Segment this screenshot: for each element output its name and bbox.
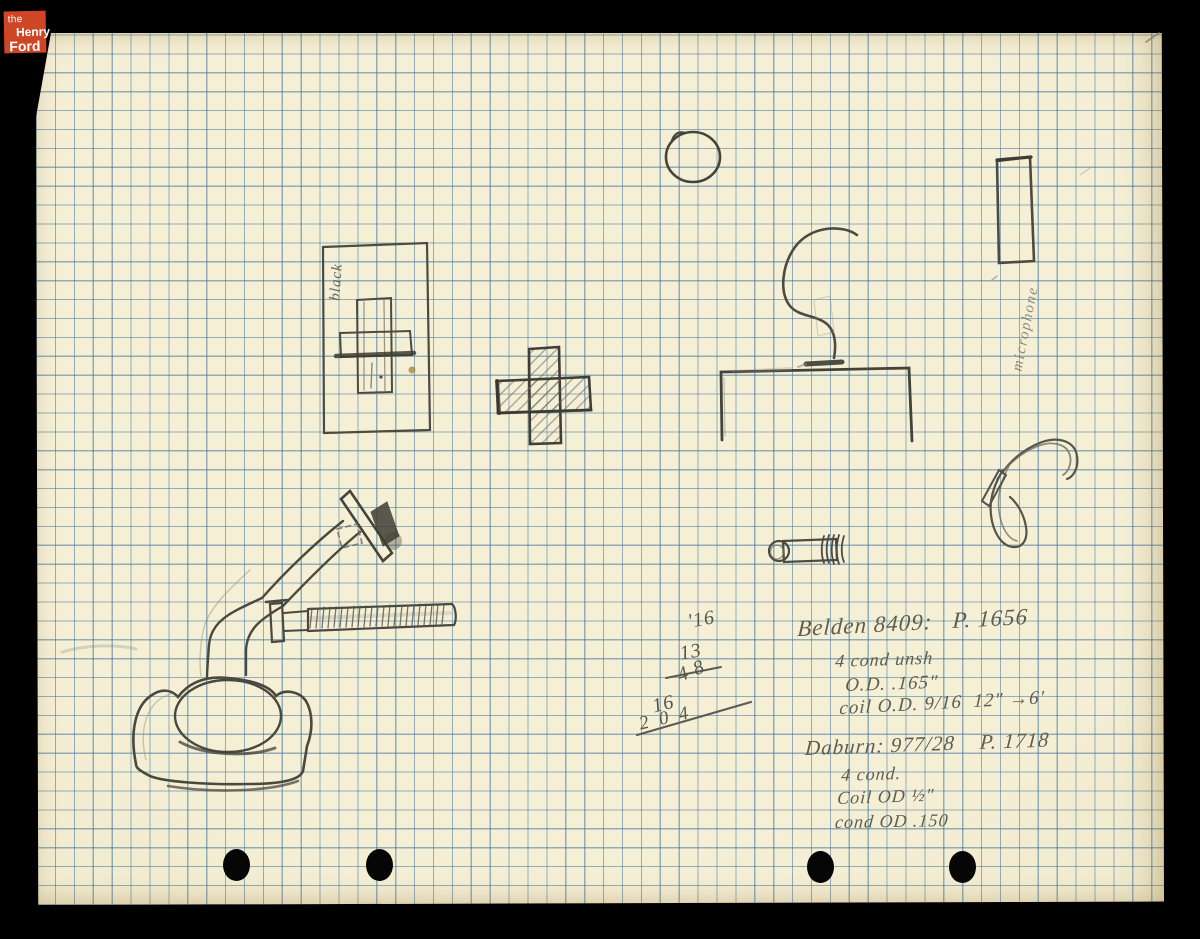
note-cond: 4 cond. [841, 763, 902, 786]
henry-ford-logo: the Henry Ford [4, 11, 47, 54]
note-cond-od: cond OD .150 [834, 810, 949, 833]
punch-hole [949, 851, 976, 883]
punch-hole [807, 851, 834, 883]
label-black: black [337, 281, 374, 299]
logo-henry: Henry [16, 26, 46, 39]
punch-hole [223, 849, 250, 881]
punch-hole [366, 849, 393, 881]
label-black-text: black [327, 263, 347, 302]
logo-ford: Ford [9, 39, 46, 54]
calc-row-1: '16 [686, 606, 717, 633]
note-coil-od-half: Coil OD ½" [837, 785, 935, 809]
scanned-sketch-page: Belden 8409: P. 1656 4 cond unsh O.D. .1… [0, 0, 1200, 939]
graph-paper [36, 33, 1164, 905]
label-microphone: microphone [1026, 328, 1112, 346]
note-cond-unsh: 4 cond unsh [835, 648, 934, 672]
